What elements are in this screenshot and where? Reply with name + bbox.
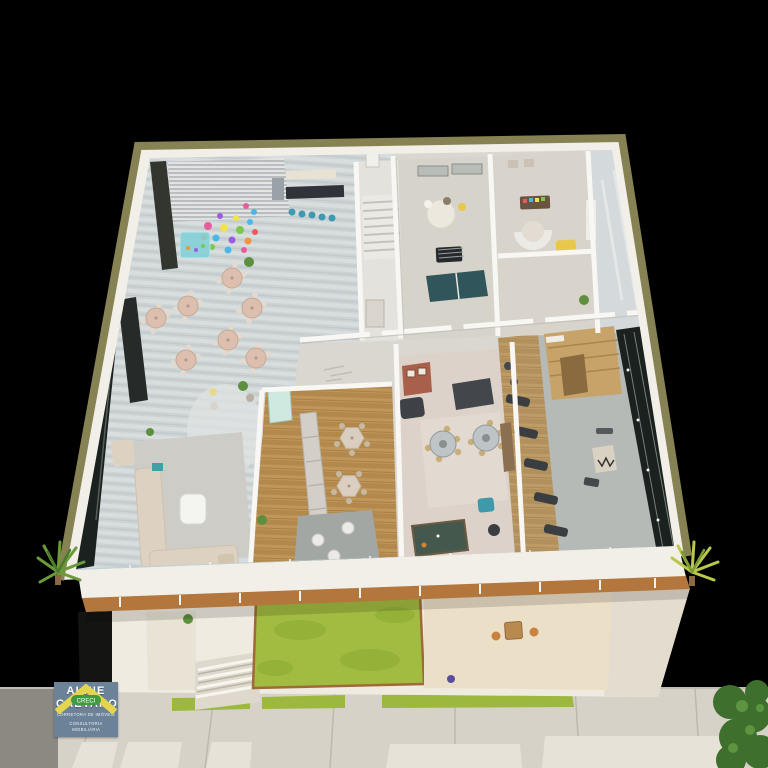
- wall-frame-1: [407, 370, 415, 377]
- teal-armchair: [477, 497, 494, 513]
- exercise-mat: [592, 445, 617, 473]
- snooker-table: [412, 520, 468, 556]
- terrace-object: [447, 675, 455, 683]
- floorplan-scene: [0, 0, 768, 768]
- aquarium: [180, 232, 210, 258]
- window-sash-2: [452, 164, 482, 174]
- mint-sideboard: [268, 390, 292, 423]
- pouf-brown: [443, 197, 451, 205]
- brick-wall: [402, 362, 432, 396]
- screenshot-canvas: CRECI ALINE CAETANO CORRETORA DE IMÓVEIS…: [0, 0, 768, 768]
- floor-slab: [60, 138, 688, 580]
- pouf-yellow: [458, 203, 466, 211]
- dark-pouf: [488, 524, 500, 536]
- wall-frame-2: [418, 368, 426, 375]
- armchair: [111, 439, 136, 467]
- coffee-table: [180, 494, 206, 524]
- snooker-ball: [437, 535, 440, 538]
- dark-armchair: [399, 396, 426, 419]
- pouf-white: [424, 200, 432, 208]
- entry-stairs: [195, 652, 260, 710]
- snooker-triangle: [422, 543, 427, 548]
- garage-opening: [78, 611, 112, 691]
- creci-text: CRECI: [77, 699, 96, 705]
- dining-rug: [420, 412, 508, 508]
- wall-art-2: [524, 159, 534, 167]
- logo-subtitle-line2: CONSULTORIA IMOBILIÁRIA: [56, 721, 116, 734]
- wall-art-1: [508, 160, 518, 168]
- sidewalk-shadow-left: [0, 688, 58, 768]
- sauna-door: [560, 354, 588, 396]
- hall-door: [366, 300, 384, 327]
- house-roof-icon: CRECI: [54, 684, 118, 714]
- window-sash-1: [418, 166, 448, 176]
- side-table: [152, 463, 163, 471]
- striped-accent-wall: [168, 158, 290, 222]
- dumbbell-rack: [596, 428, 613, 434]
- agency-logo: CRECI ALINE CAETANO CORRETORA DE IMÓVEIS…: [54, 684, 118, 737]
